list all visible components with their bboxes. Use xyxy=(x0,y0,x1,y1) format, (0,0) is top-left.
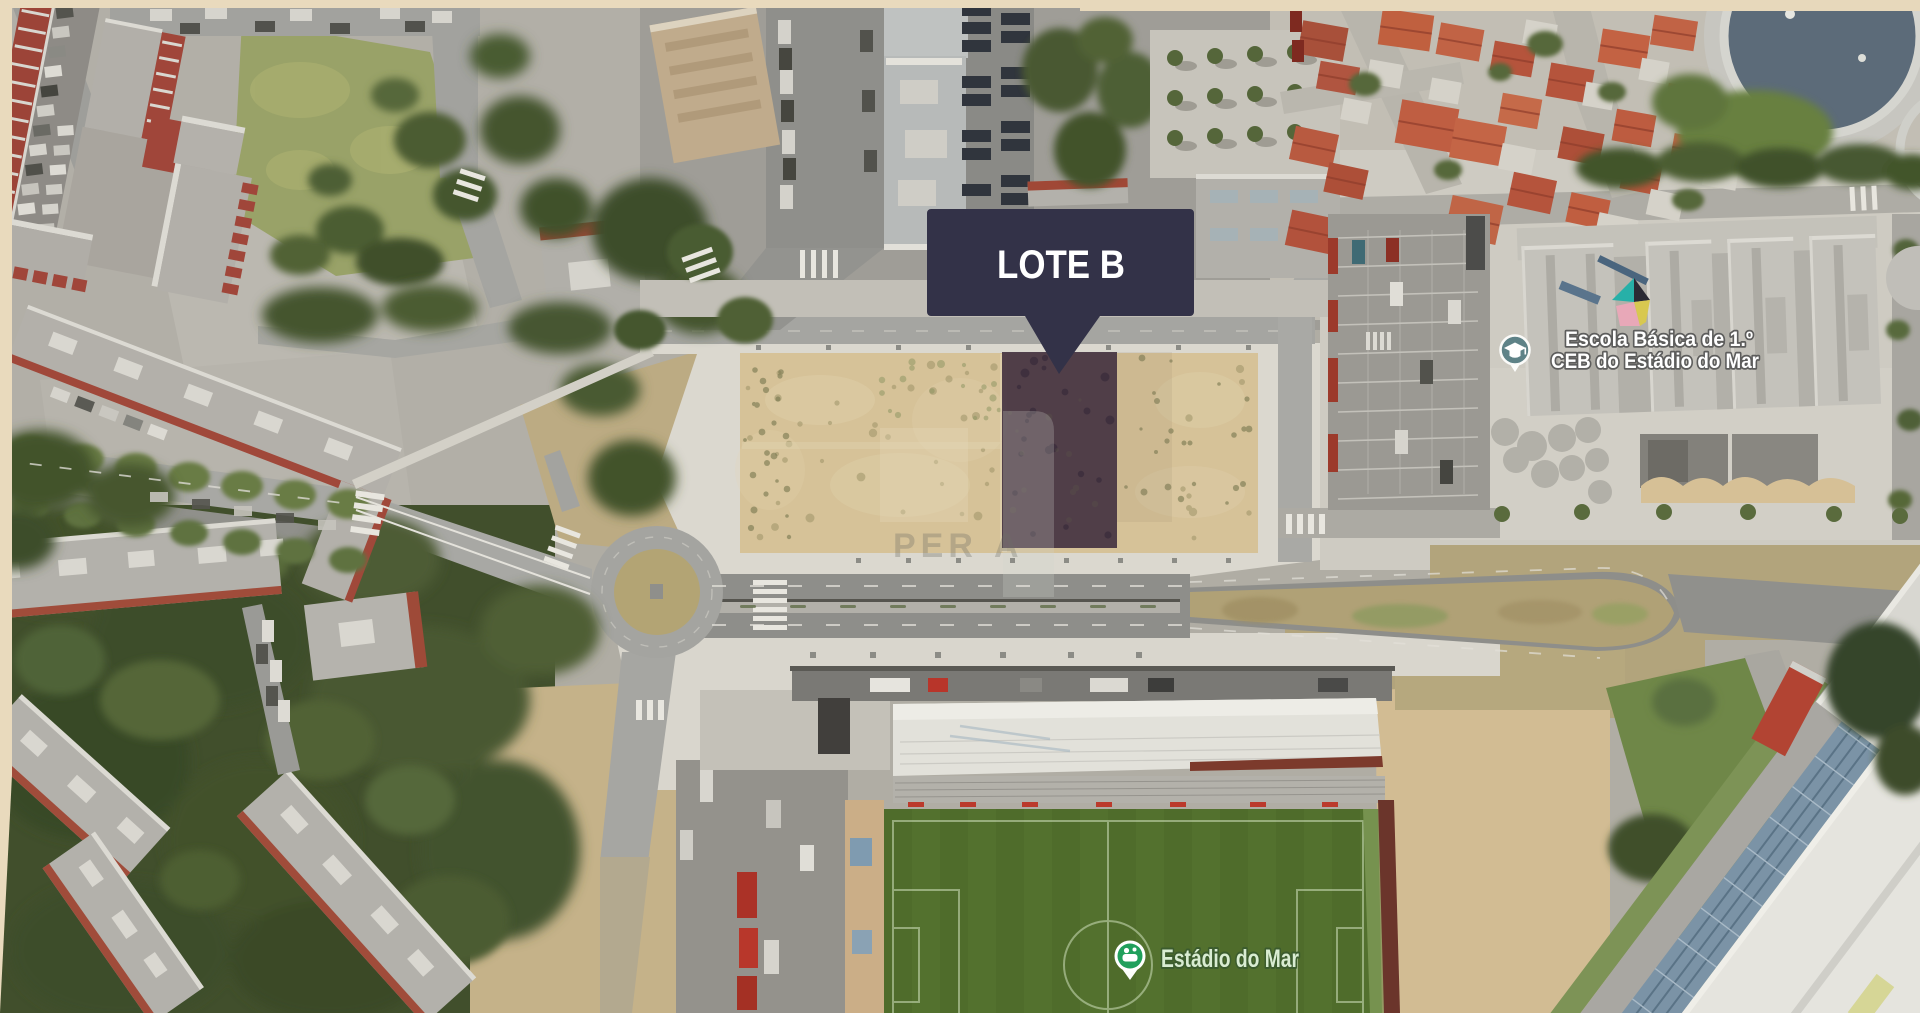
svg-text:Escola Básica de 1.º: Escola Básica de 1.º xyxy=(1565,328,1753,351)
svg-text:LOTE B: LOTE B xyxy=(997,243,1125,287)
svg-text:PER: PER xyxy=(893,527,978,565)
svg-text:Estádio do Mar: Estádio do Mar xyxy=(1161,945,1299,973)
svg-text:CEB do Estádio do Mar: CEB do Estádio do Mar xyxy=(1551,350,1759,373)
